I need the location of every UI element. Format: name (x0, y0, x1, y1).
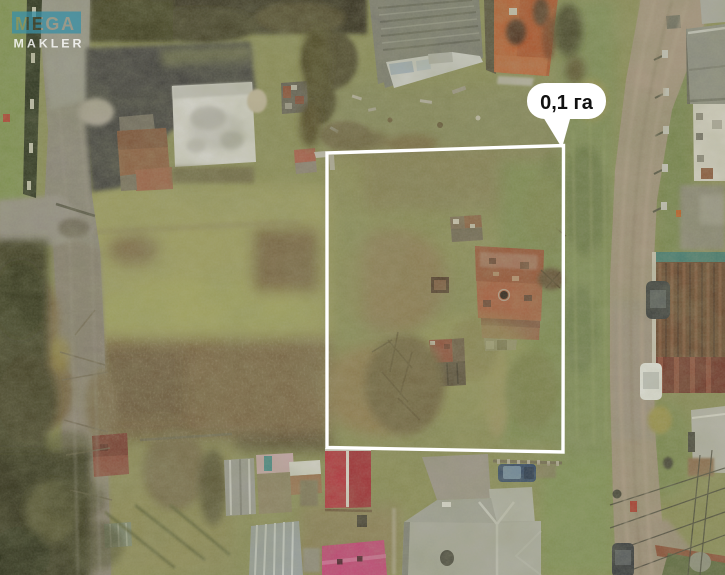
svg-text:MAKLER: MAKLER (14, 37, 85, 51)
svg-text:0,1 га: 0,1 га (540, 92, 594, 114)
